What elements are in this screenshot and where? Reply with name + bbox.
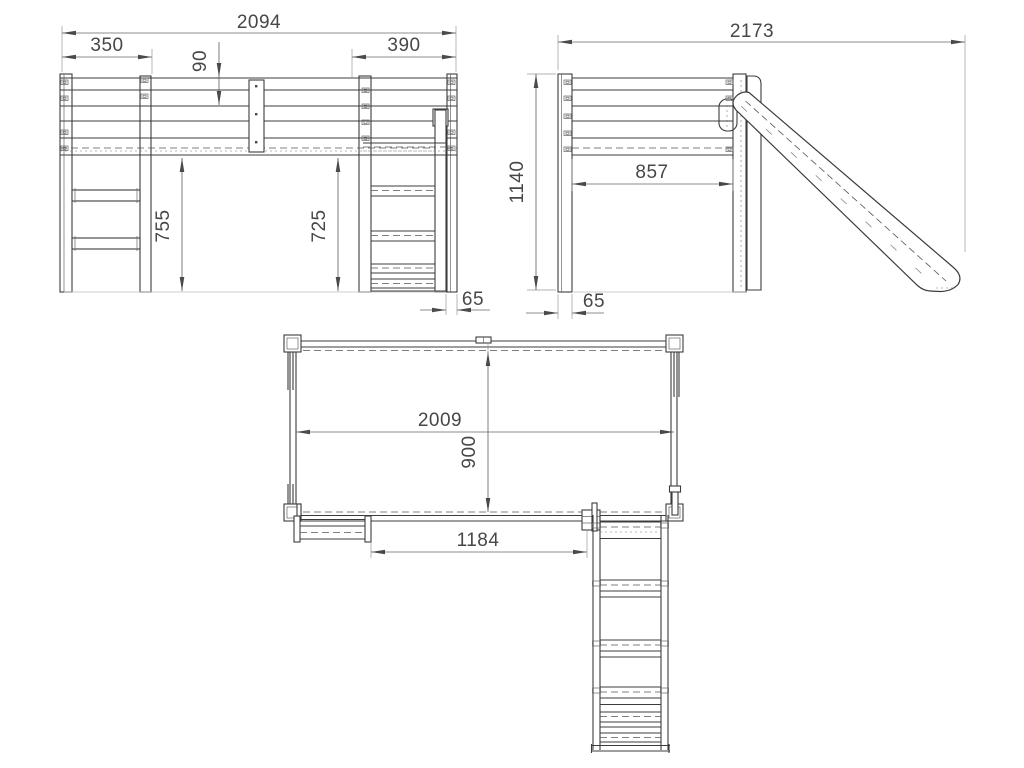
technical-drawing: 2094 350 390 90 755 725 65 xyxy=(0,0,1024,768)
plan-bed-frame xyxy=(284,341,683,521)
dim-front-clearance-right: 725 xyxy=(309,158,340,291)
dim-label-overall-width: 2094 xyxy=(237,12,281,33)
dim-label-right-section: 390 xyxy=(387,35,420,56)
dim-front-rail-height: 90 xyxy=(190,42,221,105)
front-view: 2094 350 390 90 755 725 65 xyxy=(60,12,490,315)
dim-plan-bed-width: 900 xyxy=(459,343,490,512)
plan-corner-posts xyxy=(284,335,683,521)
plan-view: 2009 900 1184 xyxy=(284,335,683,753)
dim-side-overall-height: 1140 xyxy=(507,74,556,290)
front-ladder xyxy=(363,109,448,292)
plan-left-ladder xyxy=(294,504,371,542)
side-left-post xyxy=(558,74,572,292)
dim-label-rail-height: 90 xyxy=(190,50,211,72)
dim-label-bed-width: 900 xyxy=(459,435,480,468)
dim-label-inner-clearance: 857 xyxy=(635,162,668,183)
dim-label-clearance-right: 725 xyxy=(309,209,330,242)
dim-front-left-section: 350 xyxy=(62,35,152,74)
dim-label-front-leg: 65 xyxy=(462,289,484,310)
dim-label-ladder-gap: 1184 xyxy=(457,530,500,551)
slide xyxy=(733,92,960,291)
dim-label-overall-depth: 2173 xyxy=(730,21,774,42)
dim-label-overall-height: 1140 xyxy=(507,161,528,204)
drawing-sheet: 2094 350 390 90 755 725 65 xyxy=(0,0,1024,768)
dim-label-bed-length: 2009 xyxy=(418,410,462,431)
front-left-leg xyxy=(60,74,151,292)
dim-front-right-section: 390 xyxy=(352,35,456,77)
dim-plan-ladder-gap: 1184 xyxy=(371,530,587,558)
dim-side-leg-thickness: 65 xyxy=(526,291,605,319)
dim-label-clearance-left: 755 xyxy=(153,209,174,242)
plan-slide xyxy=(591,486,681,753)
dim-front-clearance-left: 755 xyxy=(153,158,184,291)
front-center-bracket xyxy=(249,80,264,152)
side-end-rails xyxy=(572,78,733,155)
dim-label-left-section: 350 xyxy=(90,35,123,56)
dim-plan-bed-length: 2009 xyxy=(296,410,674,434)
side-fittings xyxy=(564,80,733,152)
plan-ladder-bracket xyxy=(582,503,600,531)
dim-label-side-leg: 65 xyxy=(583,291,605,312)
dim-front-leg-thickness: 65 xyxy=(420,289,490,315)
side-view: 2173 1140 857 65 xyxy=(507,21,965,319)
plan-center-tab xyxy=(476,337,491,343)
dim-side-inner-clearance: 857 xyxy=(572,159,733,191)
